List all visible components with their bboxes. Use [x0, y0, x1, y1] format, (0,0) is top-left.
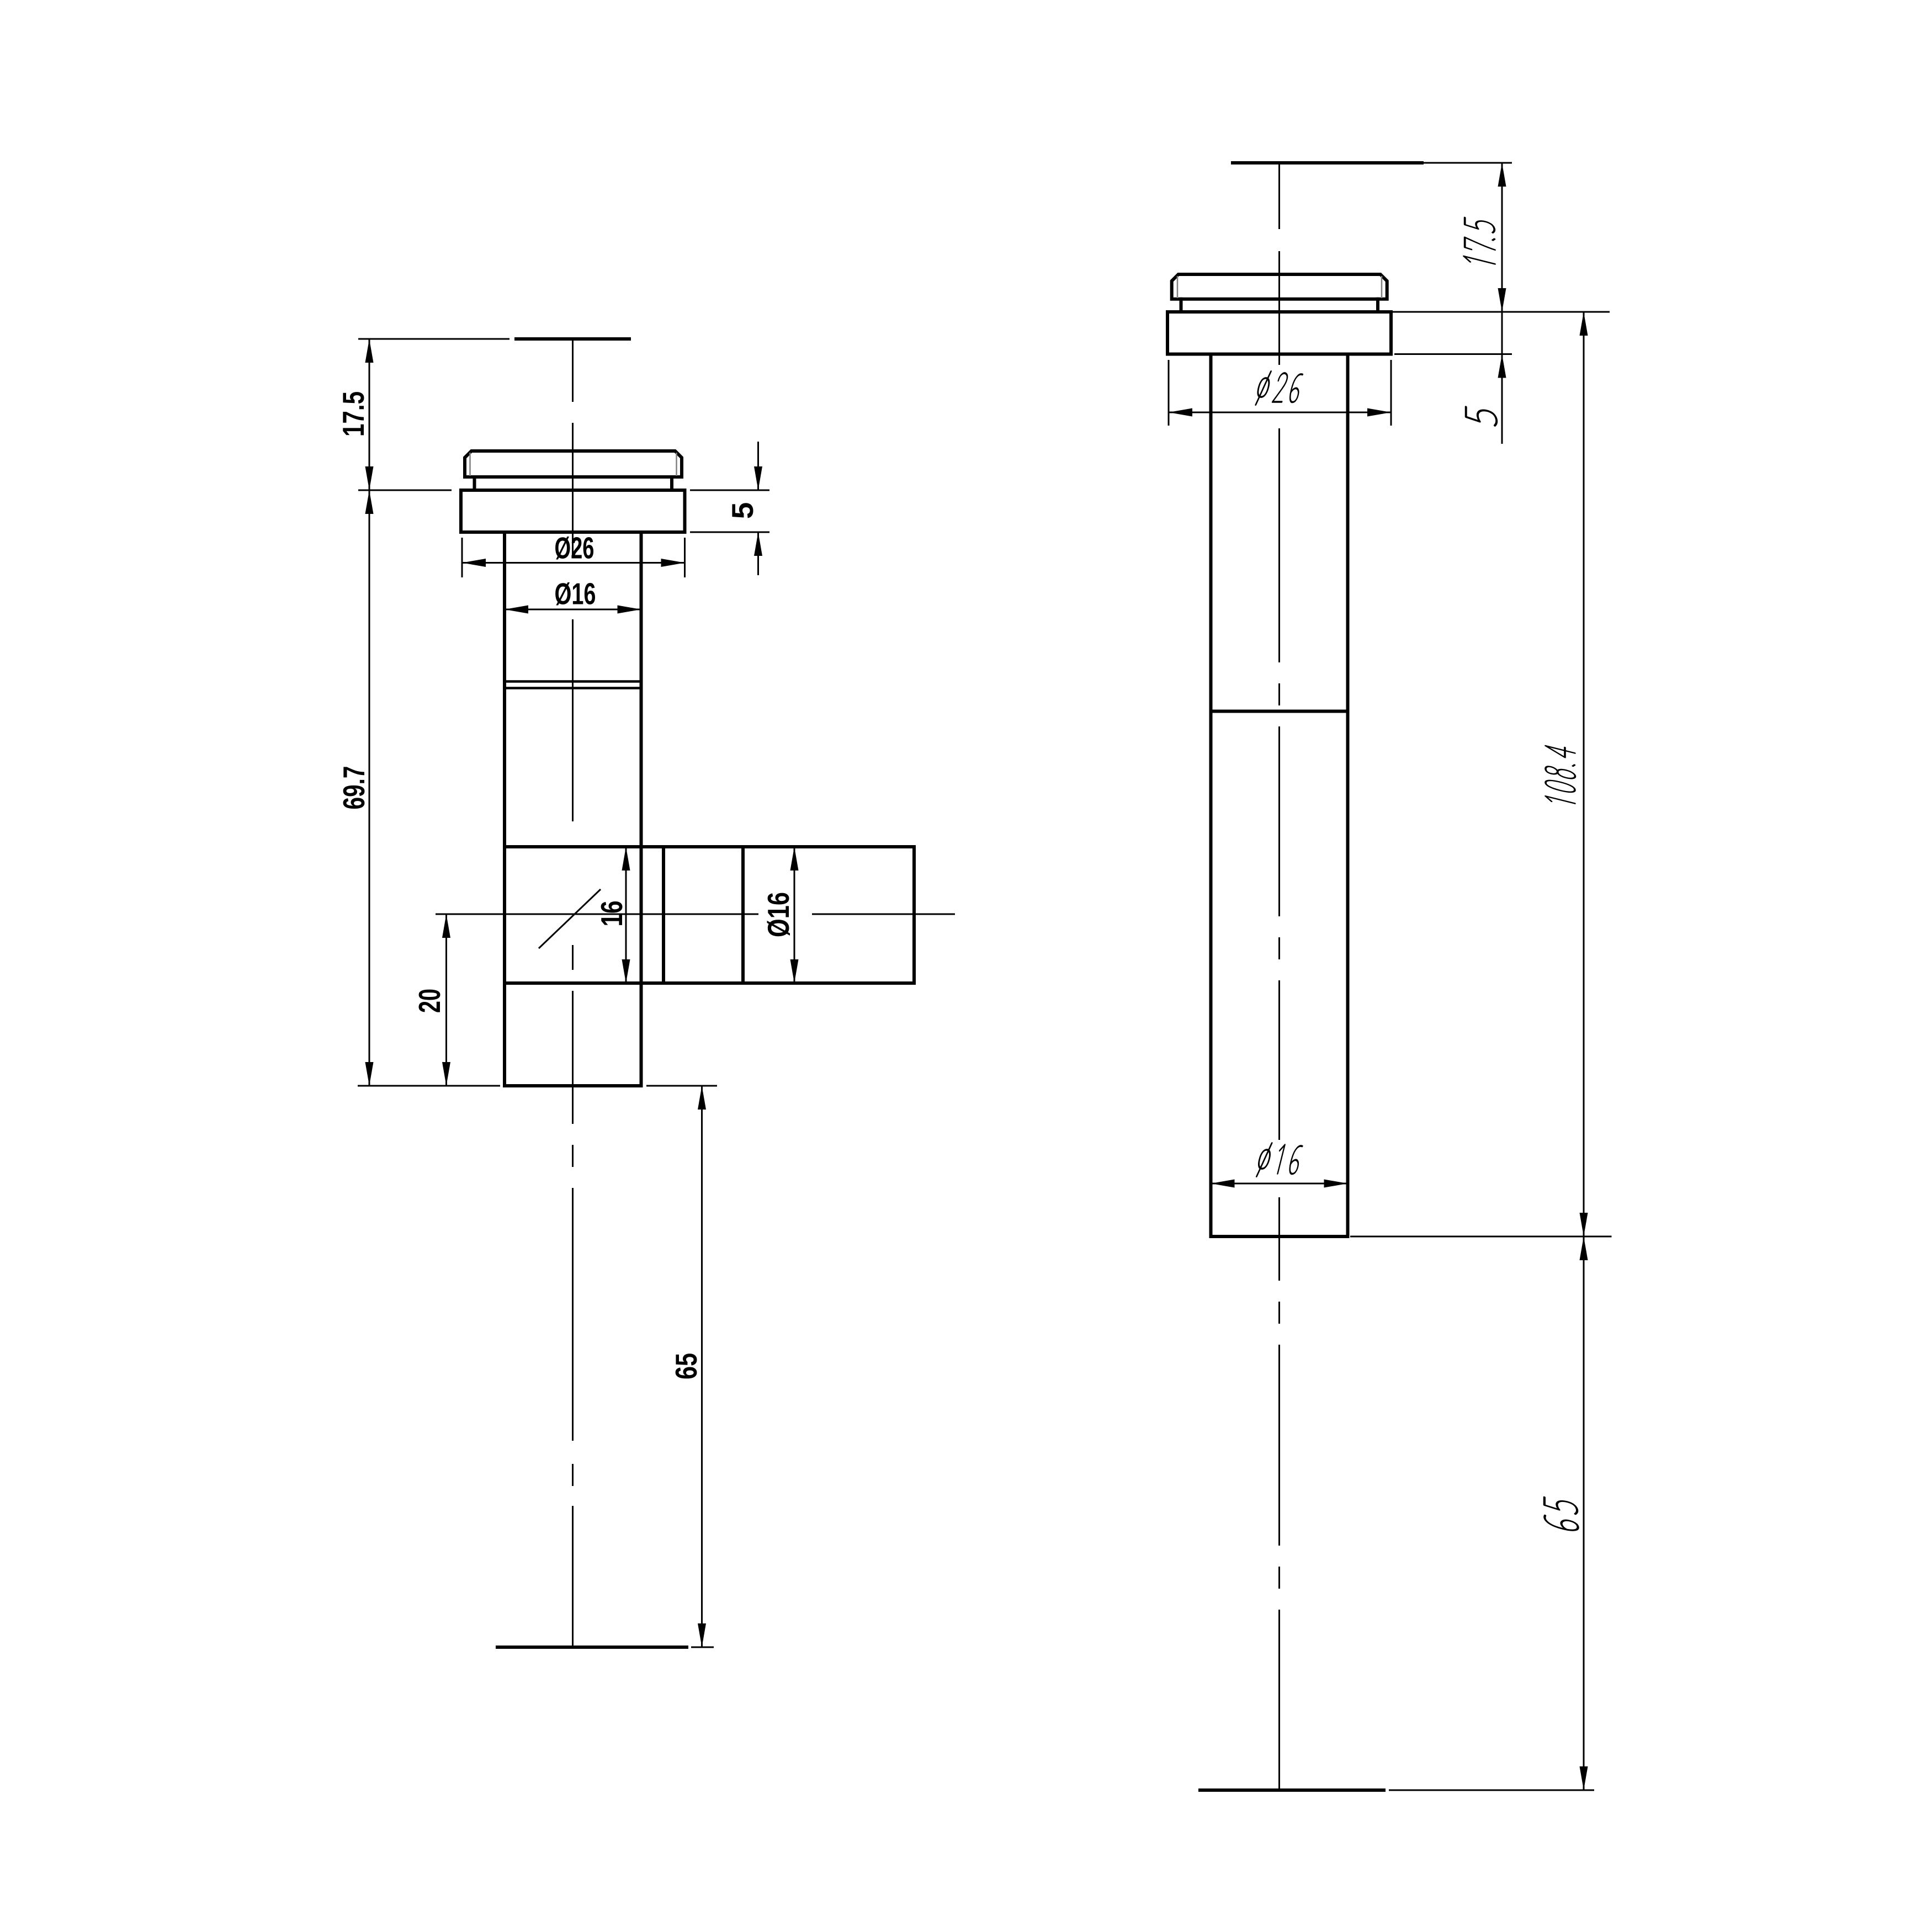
svg-text:Ø26: Ø26	[555, 531, 595, 565]
svg-text:69.7: 69.7	[337, 766, 371, 810]
svg-text:16: 16	[595, 901, 629, 927]
svg-text:17.5: 17.5	[336, 391, 370, 437]
svg-text:Ø16: Ø16	[555, 577, 596, 611]
svg-text:Ø16: Ø16	[761, 892, 795, 937]
svg-text:20: 20	[412, 989, 447, 1013]
svg-text:65: 65	[669, 1353, 703, 1379]
svg-text:5: 5	[725, 502, 760, 519]
